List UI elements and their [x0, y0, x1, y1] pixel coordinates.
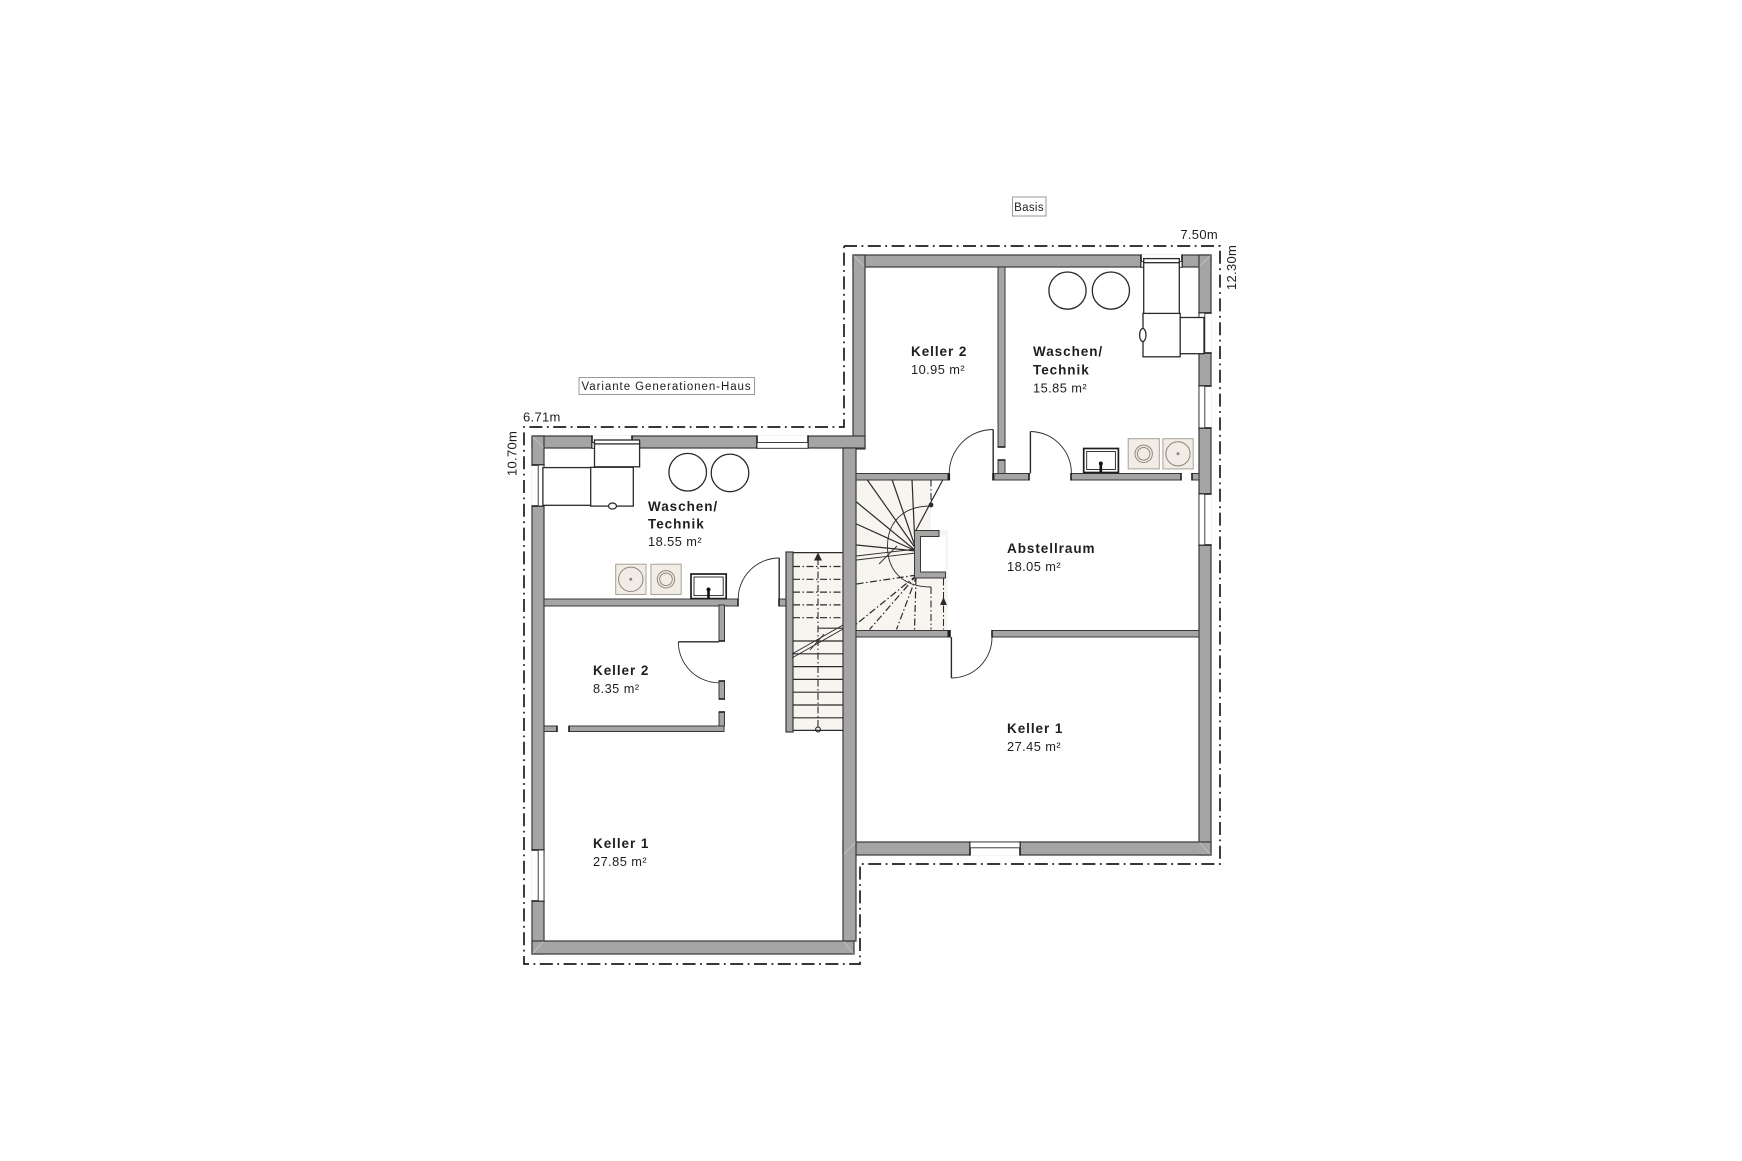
svg-text:6.71m: 6.71m — [523, 410, 561, 425]
svg-text:Waschen/: Waschen/ — [1033, 344, 1103, 359]
svg-text:Variante Generationen-Haus: Variante Generationen-Haus — [582, 381, 752, 393]
svg-text:Technik: Technik — [648, 517, 705, 532]
svg-text:8.35 m²: 8.35 m² — [593, 681, 640, 696]
svg-text:18.55 m²: 18.55 m² — [648, 534, 702, 549]
svg-text:12.30m: 12.30m — [1224, 245, 1239, 290]
svg-text:27.85 m²: 27.85 m² — [593, 854, 647, 869]
svg-text:Technik: Technik — [1033, 363, 1090, 378]
svg-text:Abstellraum: Abstellraum — [1007, 541, 1095, 556]
svg-text:Basis: Basis — [1014, 202, 1044, 214]
svg-text:Keller 1: Keller 1 — [1007, 721, 1063, 736]
svg-text:18.05 m²: 18.05 m² — [1007, 559, 1061, 574]
svg-text:Keller 2: Keller 2 — [593, 663, 649, 678]
svg-text:10.95 m²: 10.95 m² — [911, 362, 965, 377]
svg-text:15.85 m²: 15.85 m² — [1033, 381, 1087, 396]
svg-text:7.50m: 7.50m — [1180, 227, 1218, 242]
svg-text:27.45 m²: 27.45 m² — [1007, 739, 1061, 754]
svg-text:Keller 1: Keller 1 — [593, 836, 649, 851]
svg-text:10.70m: 10.70m — [505, 431, 520, 476]
svg-text:Keller 2: Keller 2 — [911, 344, 967, 359]
svg-text:Waschen/: Waschen/ — [648, 499, 718, 514]
